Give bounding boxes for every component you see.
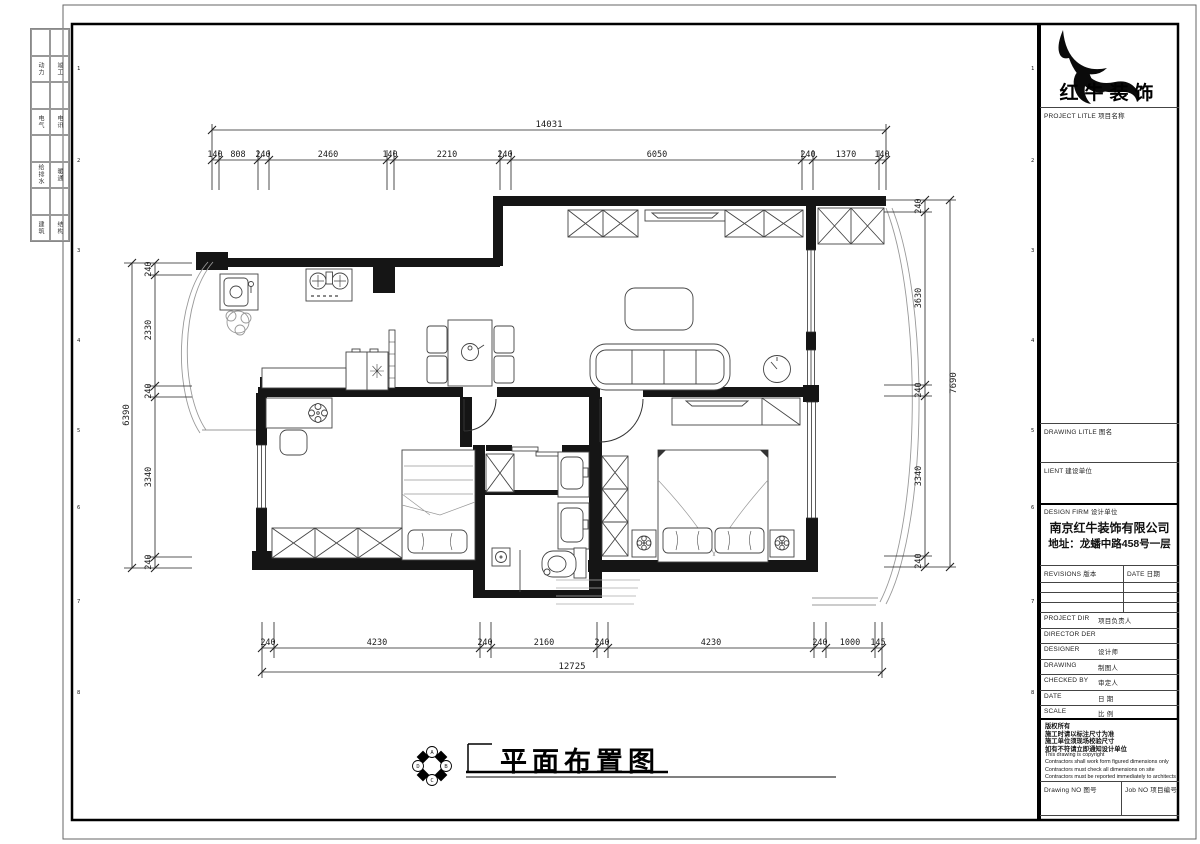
svg-text:240: 240 [914, 382, 924, 397]
svg-text:12725: 12725 [558, 662, 585, 672]
bathroom-fixtures [486, 452, 589, 592]
signoff-cell [50, 188, 69, 215]
drawing-by-label: DRAWING [1044, 662, 1077, 669]
svg-text:5: 5 [1031, 428, 1034, 434]
svg-text:7: 7 [77, 599, 80, 605]
svg-text:140: 140 [207, 150, 222, 160]
svg-text:140: 140 [874, 150, 889, 160]
signoff-cell: 给排水 [31, 162, 50, 189]
signoff-cell [50, 29, 69, 56]
svg-text:240: 240 [144, 383, 154, 398]
svg-text:6: 6 [1031, 505, 1034, 511]
svg-text:240: 240 [255, 150, 270, 160]
zone-marks: 1 2 3 4 5 6 7 8 1 2 3 4 5 6 7 8 [77, 66, 1035, 696]
svg-text:240: 240 [594, 638, 609, 648]
signoff-cell: 结构 [50, 215, 69, 242]
plant-icon [226, 311, 251, 335]
svg-text:4230: 4230 [701, 638, 721, 648]
svg-text:8: 8 [1031, 690, 1034, 696]
drawing-by-cn: 制图人 [1098, 662, 1118, 672]
fridge-icon [346, 349, 388, 390]
svg-text:C: C [430, 778, 433, 784]
svg-text:1370: 1370 [836, 150, 856, 160]
entry-closet [818, 208, 884, 244]
signoff-cell [50, 82, 69, 109]
design-firm-label: DESIGN FIRM 设计单位 [1044, 506, 1118, 516]
copyright-line-en: This drawing is copyright [1045, 752, 1104, 758]
svg-text:4: 4 [77, 338, 81, 344]
checked-by-cn: 审定人 [1098, 677, 1118, 687]
svg-text:8: 8 [77, 690, 80, 696]
designer-cn: 设计师 [1098, 646, 1118, 656]
svg-text:3: 3 [77, 248, 80, 254]
signoff-cell: 竣工 [50, 56, 69, 83]
checked-by-label: CHECKED BY [1044, 677, 1088, 684]
signoff-cell: 动力 [31, 56, 50, 83]
signoff-cell [31, 82, 50, 109]
signoff-cell: 电气 [31, 109, 50, 136]
svg-text:2: 2 [77, 158, 80, 164]
signoff-cell: 建筑 [31, 215, 50, 242]
svg-text:240: 240 [812, 638, 827, 648]
svg-text:240: 240 [260, 638, 275, 648]
scale-cn: 比 例 [1098, 708, 1113, 718]
plan-title: 平面布置图 [500, 740, 660, 779]
svg-text:240: 240 [497, 150, 512, 160]
project-dir-cn: 项目负责人 [1098, 615, 1132, 625]
svg-text:2460: 2460 [318, 150, 338, 160]
drawing-no-label: Drawing NO 图号 [1044, 784, 1097, 794]
brand-name: 红牛装饰 [1040, 78, 1179, 105]
svg-text:1: 1 [77, 66, 80, 72]
copyright-line-en: Contractors shall work form figured dime… [1045, 759, 1169, 765]
title-block: 红牛装饰 PROJECT LITLE 项目名称 DRAWING LITLE 图名… [1040, 24, 1179, 820]
svg-text:1000: 1000 [840, 638, 860, 648]
svg-text:240: 240 [144, 261, 154, 276]
copyright-line-en: Contractors must be reported immediately… [1045, 774, 1176, 780]
project-title-label: PROJECT LITLE 项目名称 [1044, 110, 1125, 120]
svg-text:5: 5 [77, 428, 80, 434]
svg-text:808: 808 [230, 150, 245, 160]
svg-text:2330: 2330 [144, 320, 154, 340]
drawing-title-label: DRAWING LITLE 图名 [1044, 426, 1112, 436]
svg-text:7: 7 [1031, 599, 1034, 605]
job-no-label: Job NO 项目编号 [1125, 784, 1177, 794]
signoff-table: 动力竣工 电气电讯 给排水暖通 建筑结构 [30, 28, 70, 242]
kitchen-counter [262, 368, 346, 388]
svg-text:240: 240 [914, 198, 924, 213]
date-col-label: DATE 日期 [1127, 568, 1160, 578]
copyright-line-en: Contractors must check all dimensions on… [1045, 767, 1155, 773]
svg-text:3340: 3340 [144, 467, 154, 487]
drawing-sheet: { "sheet": { "signoff": { "rows": [ ["动力… [0, 0, 1200, 844]
signoff-cell [31, 135, 50, 162]
svg-text:1: 1 [1031, 66, 1034, 72]
svg-text:6390: 6390 [122, 404, 132, 426]
coffee-table [625, 288, 693, 330]
scale-label: SCALE [1044, 708, 1066, 715]
svg-text:240: 240 [914, 553, 924, 568]
master-furniture [602, 398, 800, 562]
firm-name: 南京红牛装饰有限公司 [1040, 519, 1179, 536]
signoff-cell [31, 188, 50, 215]
revisions-label: REVISIONS 版本 [1044, 568, 1097, 578]
designer-label: DESIGNER [1044, 646, 1080, 653]
firm-address: 地址：龙蟠中路458号一层 [1040, 536, 1179, 551]
sink-icon [220, 274, 258, 310]
svg-text:6050: 6050 [647, 150, 667, 160]
director-label: DIRECTOR DER [1044, 631, 1096, 638]
floor-plan-canvas: 1 2 3 4 5 6 7 8 1 2 3 4 5 6 7 8 [0, 0, 1200, 844]
clock-icon [764, 356, 791, 383]
svg-text:7690: 7690 [949, 372, 959, 394]
signoff-cell: 暖通 [50, 162, 69, 189]
date-cn: 日 期 [1098, 693, 1113, 703]
svg-text:3340: 3340 [914, 466, 924, 486]
svg-text:2160: 2160 [534, 638, 554, 648]
svg-text:2210: 2210 [437, 150, 457, 160]
svg-text:14031: 14031 [535, 120, 562, 130]
svg-text:145: 145 [870, 638, 885, 648]
compass-icon: A B C D [413, 747, 452, 786]
svg-text:240: 240 [477, 638, 492, 648]
svg-text:3: 3 [1031, 248, 1034, 254]
sofa-icon [590, 344, 730, 390]
svg-text:240: 240 [800, 150, 815, 160]
project-dir-label: PROJECT DIR [1044, 615, 1089, 622]
svg-text:4230: 4230 [367, 638, 387, 648]
signoff-cell: 电讯 [50, 109, 69, 136]
tv-cabinet-living [568, 210, 803, 237]
signoff-cell [31, 29, 50, 56]
svg-text:D: D [416, 764, 419, 770]
stove-icon [306, 269, 352, 301]
dining-table [427, 320, 514, 386]
svg-text:240: 240 [144, 554, 154, 569]
client-label: LIENT 建设单位 [1044, 465, 1092, 475]
svg-text:140: 140 [382, 150, 397, 160]
signoff-cell [50, 135, 69, 162]
svg-text:3630: 3630 [914, 288, 924, 308]
date-label: DATE [1044, 693, 1062, 700]
svg-text:4: 4 [1031, 338, 1035, 344]
svg-text:2: 2 [1031, 158, 1034, 164]
svg-text:6: 6 [77, 505, 80, 511]
bedroom2-furniture [266, 398, 475, 560]
